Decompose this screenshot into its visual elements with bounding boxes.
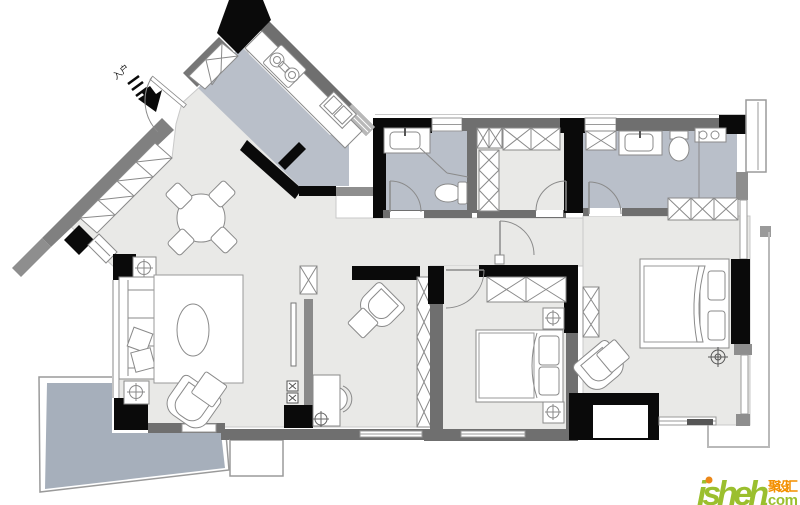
svg-text:jsheh: jsheh	[693, 475, 769, 505]
svg-text:.com: .com	[764, 492, 798, 505]
